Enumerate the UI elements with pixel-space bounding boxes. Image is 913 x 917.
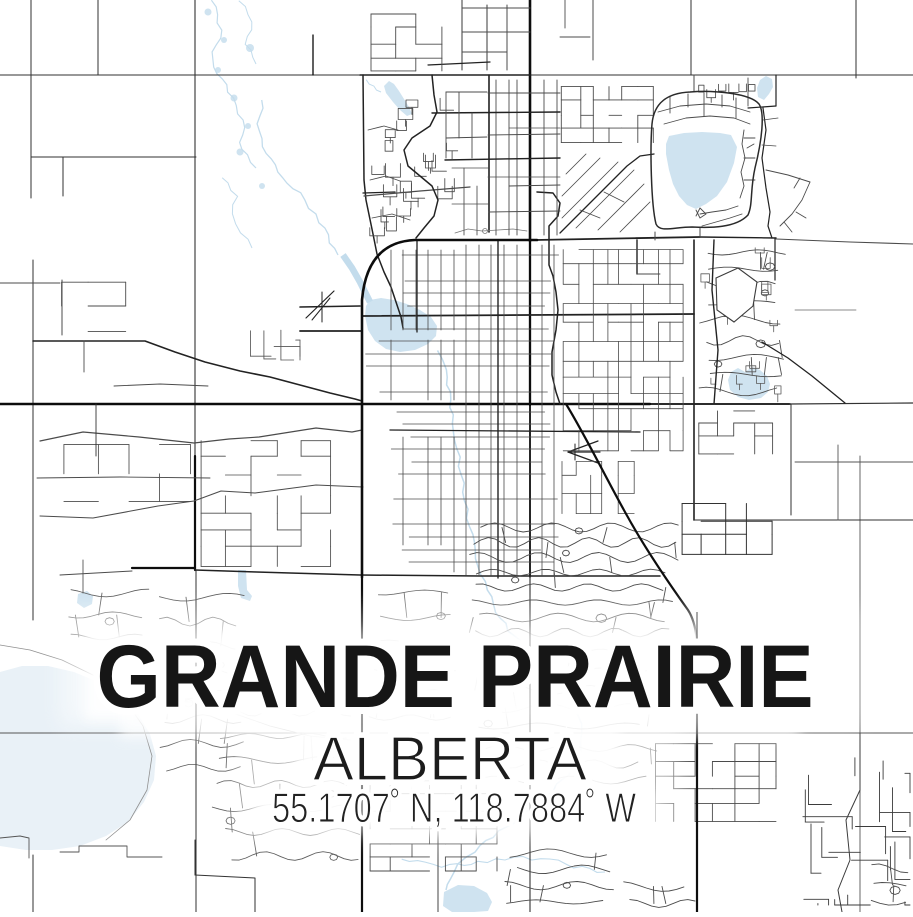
svg-text:GRANDE PRAIRIE: GRANDE PRAIRIE xyxy=(97,626,814,726)
svg-text:55.1707˚ N, 118.7884˚ W: 55.1707˚ N, 118.7884˚ W xyxy=(272,784,636,831)
